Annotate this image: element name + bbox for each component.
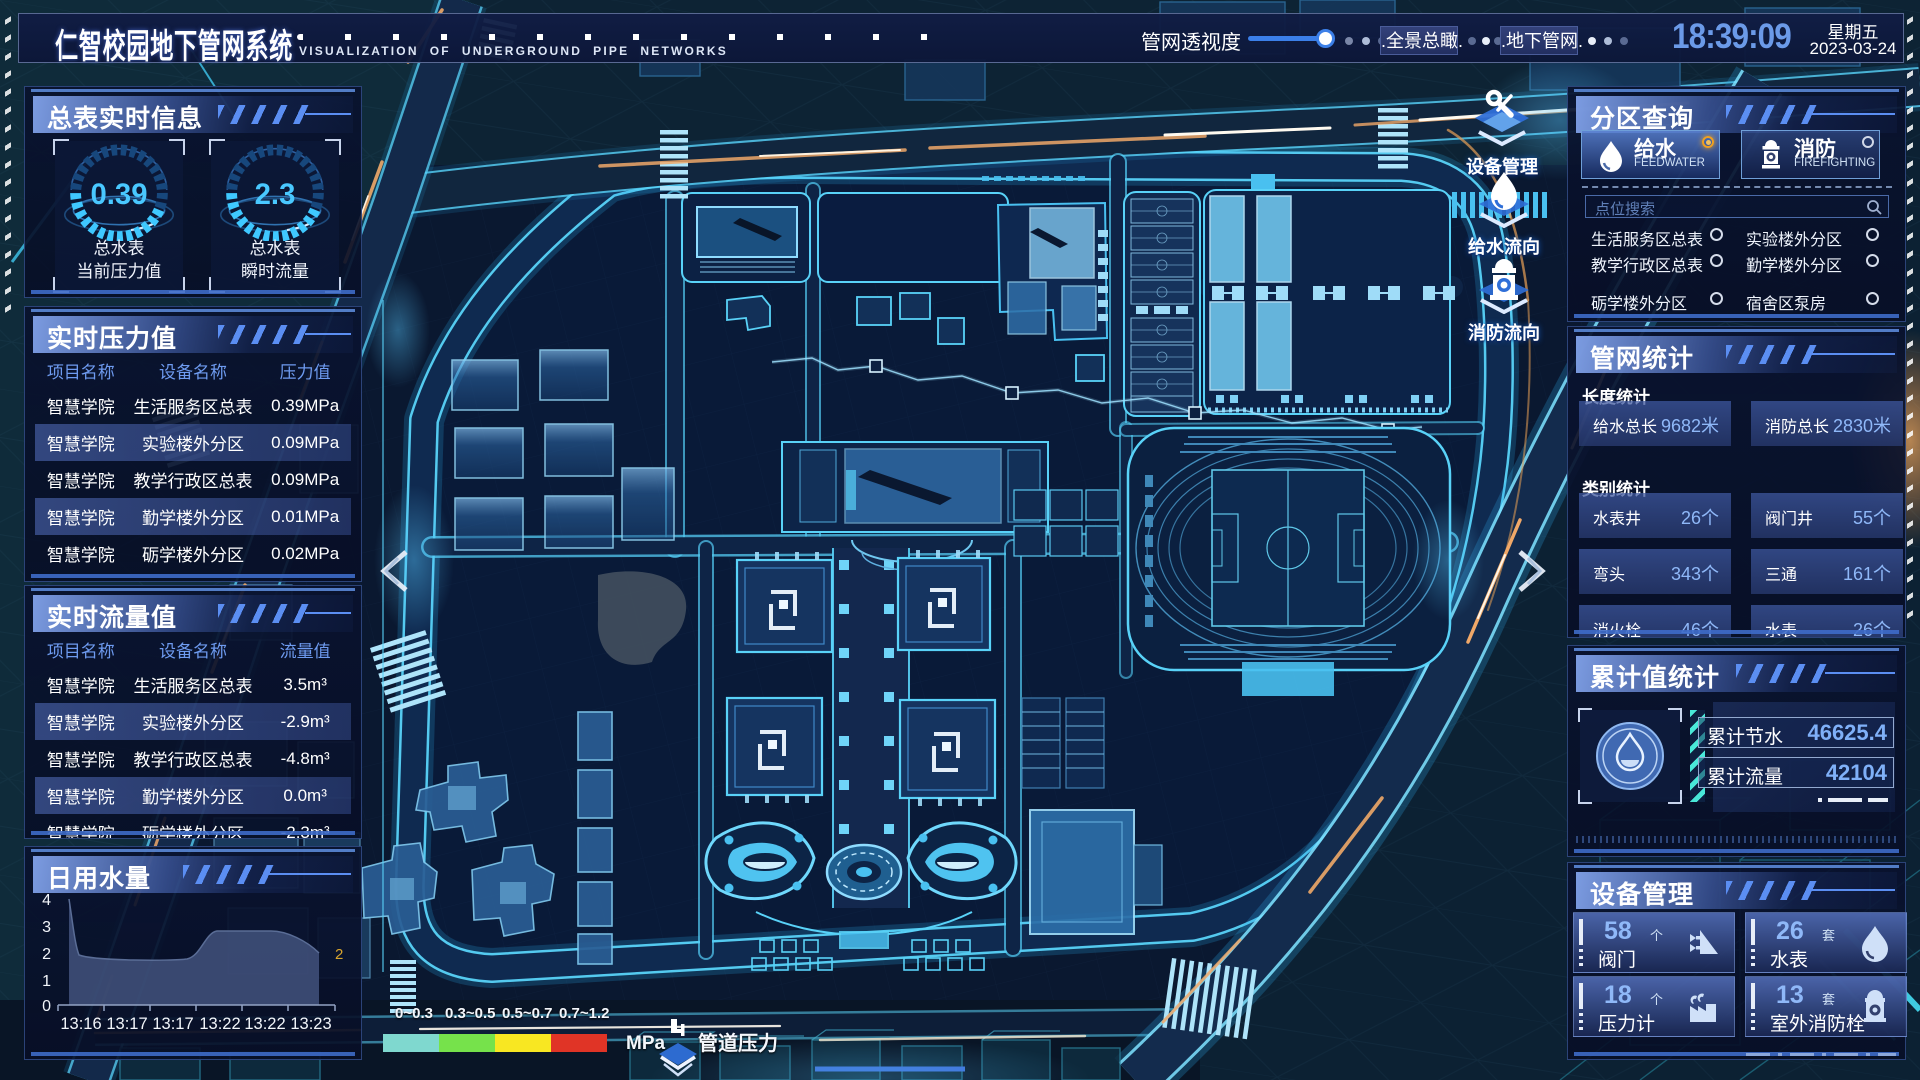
svg-text:2.3: 2.3 — [255, 178, 296, 211]
svg-text:0: 0 — [42, 998, 51, 1015]
svg-text:4: 4 — [42, 893, 51, 909]
svg-text:13:16: 13:16 — [60, 1015, 101, 1033]
svg-text:13:22: 13:22 — [244, 1015, 285, 1033]
svg-text:13:22: 13:22 — [199, 1015, 240, 1033]
svg-text:2: 2 — [335, 946, 343, 963]
svg-text:3: 3 — [42, 919, 51, 936]
svg-text:2: 2 — [42, 946, 51, 963]
svg-text:13:17: 13:17 — [152, 1015, 193, 1033]
svg-text:13:17: 13:17 — [106, 1015, 147, 1033]
svg-text:0.39: 0.39 — [91, 178, 148, 211]
svg-text:13:23: 13:23 — [290, 1015, 331, 1033]
svg-text:1: 1 — [42, 973, 51, 990]
